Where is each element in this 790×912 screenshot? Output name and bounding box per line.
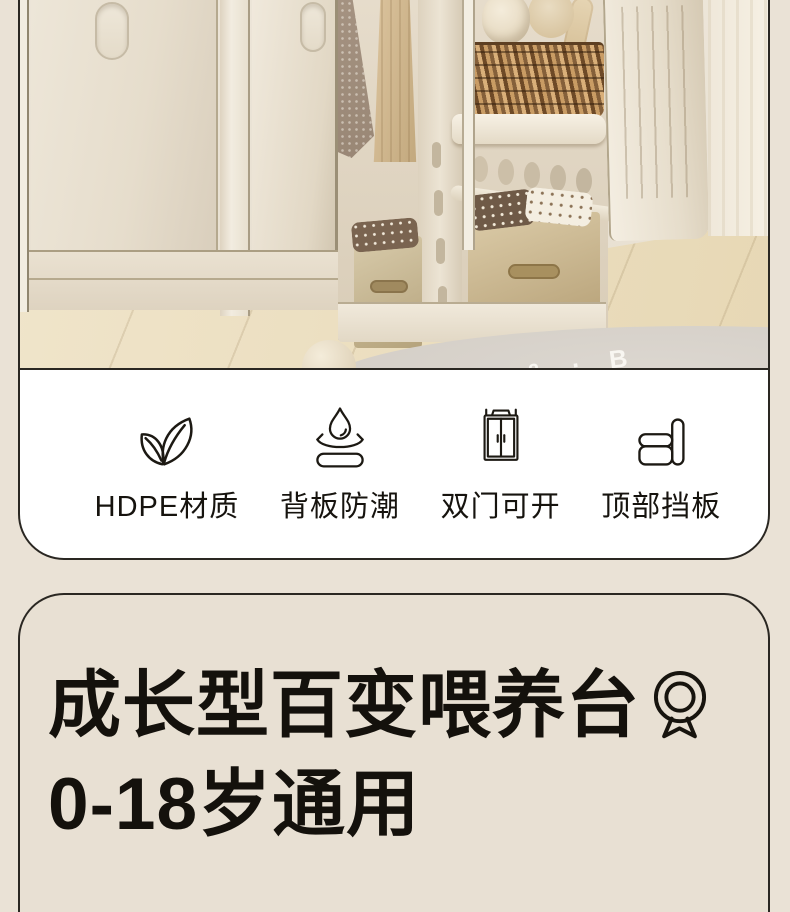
wicker-basket [462,42,604,118]
polka-fabric-light [524,187,593,228]
hero-scene: MOON · & · B [20,0,768,368]
title-card: 成长型百变喂养台 0-18岁通用 [18,593,770,912]
polka-fabric-small [351,217,419,253]
door-slot-handle [300,2,326,52]
left-frame-strip [20,0,29,312]
svg-text:MOON · & · B: MOON · & · B [350,343,640,370]
curtain-wall [708,0,768,236]
product-detail-column: MOON · & · B HDPE材质 [18,0,770,912]
cabinet-right-open-door [603,0,709,241]
plush-bear [482,0,530,44]
double-door-cabinet-icon [478,398,524,468]
door-ridges [621,5,692,199]
bin-large-handle [508,264,560,279]
leaf-icon [137,398,197,468]
feature-item-baffle: 顶部挡板 [601,398,721,525]
cabinet-shelf [452,114,606,144]
panel-slot-cutouts [432,142,441,168]
feature-label: 背板防潮 [280,483,400,525]
rug-lettering: MOON · & · B [315,326,770,370]
cabinet-frame-divider [462,0,475,250]
water-drop-icon [313,398,367,468]
molded-side-panel [418,0,462,336]
top-baffle-icon [636,398,686,468]
title-line-2: 0-18岁通用 [48,766,750,843]
feature-label: 顶部挡板 [601,483,721,525]
product-title: 成长型百变喂养台 [48,667,640,744]
hero-photo: MOON · & · B [18,0,770,370]
title-line-1: 成长型百变喂养台 [48,667,750,744]
feature-item-moisture: 背板防潮 [280,398,400,525]
door-slot-handle [95,2,129,60]
feature-item-hdpe: HDPE材质 [95,398,240,525]
round-rug: MOON · & · B [315,326,770,370]
feature-label: 双门可开 [441,483,561,525]
medal-icon [652,668,708,743]
features-card: HDPE材质 背板防潮 [18,370,770,560]
feature-label: HDPE材质 [95,483,240,525]
feature-item-doors: 双门可开 [441,398,561,525]
bin-small-handle [370,280,408,293]
cabinet-plinth [29,250,338,310]
